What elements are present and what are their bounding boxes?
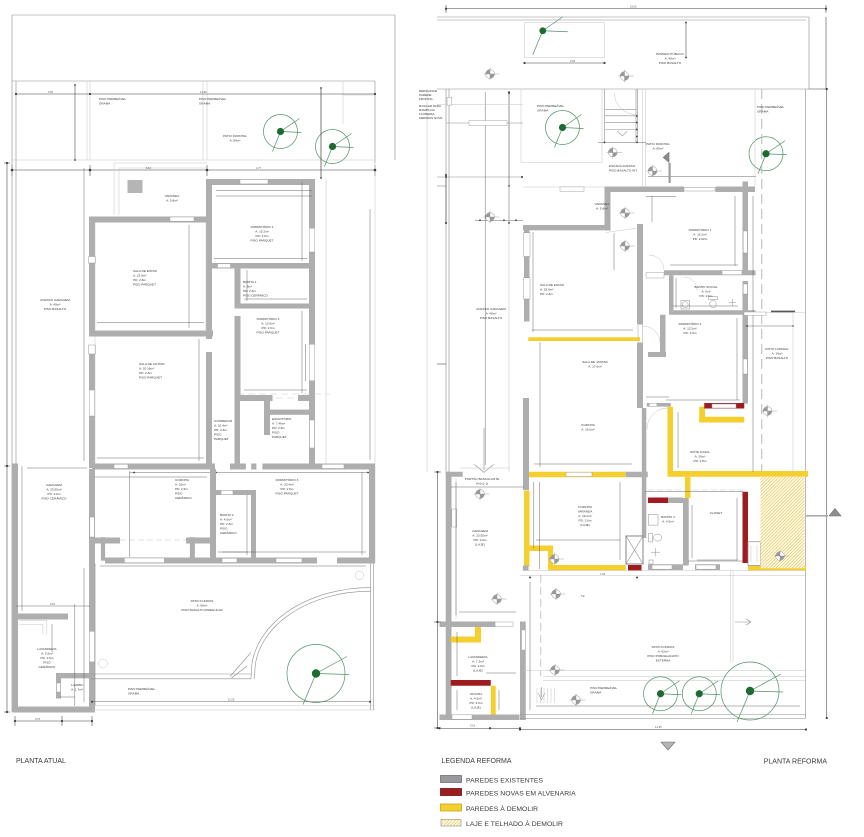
svg-text:PD: 2.6m: PD: 2.6m bbox=[175, 487, 188, 491]
svg-text:PD: 2.8m: PD: 2.8m bbox=[694, 459, 707, 463]
svg-text:PISO BASALTO IRREGULAR: PISO BASALTO IRREGULAR bbox=[181, 608, 223, 612]
svg-text:PARQUET: PARQUET bbox=[272, 435, 287, 439]
svg-text:(LAJE): (LAJE) bbox=[475, 543, 484, 547]
svg-text:A: 25.55m²: A: 25.55m² bbox=[46, 488, 61, 492]
svg-text:A: 23.6m²: A: 23.6m² bbox=[133, 274, 146, 278]
svg-text:A: 5.5m²: A: 5.5m² bbox=[41, 652, 53, 656]
svg-text:PD: 2.6m: PD: 2.6m bbox=[220, 522, 233, 526]
svg-text:PD: 2.8m: PD: 2.8m bbox=[272, 426, 285, 430]
svg-text:PLANTA REFORMA: PLANTA REFORMA bbox=[764, 759, 828, 766]
svg-text:PISO CERÂMICO: PISO CERÂMICO bbox=[42, 497, 68, 501]
svg-text:3.55: 3.55 bbox=[48, 90, 54, 94]
svg-text:A: 40m²: A: 40m² bbox=[665, 57, 676, 61]
svg-text:PISO PERMEÁVEL: PISO PERMEÁVEL bbox=[128, 687, 155, 691]
svg-text:SALA DE JANTAR: SALA DE JANTAR bbox=[582, 360, 608, 364]
svg-text:PISO: PISO bbox=[272, 431, 280, 435]
svg-text:8.10: 8.10 bbox=[146, 166, 152, 170]
svg-text:A: 16m²: A: 16m² bbox=[772, 352, 783, 356]
svg-text:PISO PORCELANATO: PISO PORCELANATO bbox=[647, 654, 679, 658]
svg-text:A: 4.5m²: A: 4.5m² bbox=[662, 520, 674, 524]
svg-text:PISO: PISO bbox=[220, 527, 228, 531]
svg-text:PISO PERMEÁVEL: PISO PERMEÁVEL bbox=[537, 104, 564, 108]
svg-text:A: 4.6m²: A: 4.6m² bbox=[220, 518, 232, 522]
svg-text:PISO PARQUET: PISO PARQUET bbox=[139, 376, 162, 380]
svg-text:PISO PERMEÁVEL: PISO PERMEÁVEL bbox=[99, 97, 126, 101]
svg-text:GARAGEM: GARAGEM bbox=[46, 483, 62, 487]
svg-text:A: 12.5m²: A: 12.5m² bbox=[683, 327, 696, 331]
svg-text:PD: 2.6m: PD: 2.6m bbox=[470, 701, 483, 705]
svg-text:MEDIDAS NOVA: MEDIDAS NOVA bbox=[419, 116, 443, 120]
svg-text:PISO CERÂMICO: PISO CERÂMICO bbox=[243, 294, 269, 298]
svg-text:PD: 2.6m: PD: 2.6m bbox=[214, 428, 227, 432]
svg-text:SUÍTE CASAL: SUÍTE CASAL bbox=[690, 450, 710, 454]
svg-text:PISO BASALTO INT.: PISO BASALTO INT. bbox=[609, 169, 638, 173]
svg-text:SALA DE JANTAR: SALA DE JANTAR bbox=[139, 362, 165, 366]
svg-text:A: 15.2m²: A: 15.2m² bbox=[693, 233, 706, 237]
svg-text:PD: 2.6m: PD: 2.6m bbox=[540, 292, 553, 296]
svg-text:PD: 2.6m: PD: 2.6m bbox=[262, 326, 275, 330]
svg-text:T2: T2 bbox=[581, 594, 585, 598]
svg-text:PLANTA ATUAL: PLANTA ATUAL bbox=[16, 758, 66, 765]
svg-text:PORTÃO BASCULANTE: PORTÃO BASCULANTE bbox=[465, 476, 500, 481]
svg-text:VARANDA: VARANDA bbox=[578, 510, 594, 514]
svg-text:PISO: PISO bbox=[175, 492, 183, 496]
svg-text:A: 5.8m²: A: 5.8m² bbox=[596, 207, 608, 211]
svg-text:OFICINA: OFICINA bbox=[470, 692, 483, 696]
svg-text:PD: 2.6m: PD: 2.6m bbox=[256, 234, 269, 238]
svg-text:A: 4.5m²: A: 4.5m² bbox=[470, 697, 482, 701]
svg-text:VARANDA: VARANDA bbox=[595, 202, 611, 206]
svg-text:BANHO 2: BANHO 2 bbox=[661, 515, 675, 519]
svg-text:A: 15.6m²: A: 15.6m² bbox=[581, 428, 594, 432]
svg-text:DORMITÓRIO 1: DORMITÓRIO 1 bbox=[689, 227, 712, 232]
svg-text:LAVANDERIA: LAVANDERIA bbox=[468, 655, 488, 659]
svg-text:DORMITÓRIO 2: DORMITÓRIO 2 bbox=[257, 316, 280, 321]
svg-text:SALA DE ESTAR: SALA DE ESTAR bbox=[133, 269, 158, 273]
svg-text:GRAMA: GRAMA bbox=[199, 102, 211, 106]
svg-text:A: 25.9m²: A: 25.9m² bbox=[540, 288, 553, 292]
svg-text:PD: 2.6m: PD: 2.6m bbox=[48, 492, 61, 496]
svg-text:(LAJE): (LAJE) bbox=[471, 706, 480, 710]
svg-text:BANHO 1: BANHO 1 bbox=[243, 280, 257, 284]
svg-text:PAREDES NOVAS EM ALVENARIA: PAREDES NOVAS EM ALVENARIA bbox=[466, 791, 576, 798]
svg-text:GRAMA: GRAMA bbox=[99, 102, 111, 106]
svg-text:PATIO FRONTAL: PATIO FRONTAL bbox=[223, 134, 247, 138]
svg-text:PARQUET: PARQUET bbox=[214, 437, 229, 441]
svg-text:11.25: 11.25 bbox=[228, 697, 235, 701]
svg-text:PD: 2.6m: PD: 2.6m bbox=[243, 289, 256, 293]
svg-text:SALA DE ESTAR: SALA DE ESTAR bbox=[540, 283, 565, 287]
svg-text:DORMITÓRIO 3: DORMITÓRIO 3 bbox=[276, 477, 299, 482]
svg-text:GRAMA: GRAMA bbox=[128, 692, 140, 696]
svg-text:ESCADA ACESSO: ESCADA ACESSO bbox=[609, 164, 636, 168]
svg-text:GRAMA: GRAMA bbox=[590, 691, 602, 695]
svg-text:DORMITÓRIO 1: DORMITÓRIO 1 bbox=[251, 224, 274, 229]
svg-text:A: 13.5m²: A: 13.5m² bbox=[261, 322, 274, 326]
svg-text:A: 10.4m²: A: 10.4m² bbox=[214, 424, 227, 428]
svg-text:A: 20.16m²: A: 20.16m² bbox=[139, 367, 154, 371]
svg-text:PD: 2.8m: PD: 2.8m bbox=[281, 487, 294, 491]
svg-text:A: 16m²: A: 16m² bbox=[175, 483, 186, 487]
svg-text:ACESSO GARAGEM: ACESSO GARAGEM bbox=[476, 307, 506, 311]
svg-text:A: 7.3m²: A: 7.3m² bbox=[472, 660, 484, 664]
svg-text:PISO PERMEÁVEL: PISO PERMEÁVEL bbox=[199, 97, 226, 101]
svg-text:PISO BASALTO: PISO BASALTO bbox=[766, 356, 789, 360]
svg-text:3.63: 3.63 bbox=[570, 59, 576, 63]
svg-text:ESCRITÓRIO: ESCRITÓRIO bbox=[272, 416, 292, 421]
svg-text:3.70: 3.70 bbox=[35, 717, 41, 721]
svg-text:PAREDES EXISTENTES: PAREDES EXISTENTES bbox=[466, 778, 543, 785]
svg-text:BANHO SOCIAL: BANHO SOCIAL bbox=[694, 285, 717, 289]
svg-text:LAVABO: LAVABO bbox=[71, 683, 84, 687]
svg-text:PISO PERMEÁVEL: PISO PERMEÁVEL bbox=[590, 686, 617, 690]
svg-text:7.18: 7.18 bbox=[600, 572, 606, 576]
svg-text:PD: 2.62m: PD: 2.62m bbox=[693, 237, 708, 241]
svg-text:15.00: 15.00 bbox=[630, 5, 637, 9]
svg-text:PISO PARQUET: PISO PARQUET bbox=[257, 331, 280, 335]
svg-text:LAVANDERIA: LAVANDERIA bbox=[37, 647, 57, 651]
svg-text:CLOSET: CLOSET bbox=[710, 511, 722, 515]
svg-text:PD: 2.6m: PD: 2.6m bbox=[472, 664, 485, 668]
svg-text:PD: 2.6m: PD: 2.6m bbox=[474, 538, 487, 542]
svg-text:PATIO LATERAL: PATIO LATERAL bbox=[765, 347, 788, 351]
svg-text:A: 23.55m²: A: 23.55m² bbox=[472, 534, 487, 538]
svg-text:PAREDES À DEMOLIR: PAREDES À DEMOLIR bbox=[466, 804, 538, 813]
svg-text:PATIO FUNDOS: PATIO FUNDOS bbox=[652, 645, 675, 649]
svg-text:A: 5m²: A: 5m² bbox=[701, 290, 710, 294]
svg-text:A: 26m²: A: 26m² bbox=[695, 455, 706, 459]
svg-text:3.61: 3.61 bbox=[50, 602, 56, 606]
svg-text:PISO BASALTO: PISO BASALTO bbox=[44, 307, 67, 311]
svg-text:PISO PARQUET: PISO PARQUET bbox=[276, 492, 299, 496]
svg-text:BANHO 2: BANHO 2 bbox=[220, 513, 234, 517]
svg-text:(LAJE): (LAJE) bbox=[473, 669, 482, 673]
svg-text:PD: 2.6m: PD: 2.6m bbox=[684, 331, 697, 335]
svg-text:(LAJE): (LAJE) bbox=[580, 523, 589, 527]
svg-text:EXTERNA: EXTERNA bbox=[656, 659, 672, 663]
svg-text:A: 5m²: A: 5m² bbox=[243, 285, 252, 289]
svg-text:14.90: 14.90 bbox=[200, 90, 207, 94]
svg-text:PATIO FUNDOS: PATIO FUNDOS bbox=[191, 599, 214, 603]
svg-text:CERÂMICO: CERÂMICO bbox=[39, 665, 56, 669]
svg-text:LEGENDA REFORMA: LEGENDA REFORMA bbox=[442, 758, 512, 765]
svg-text:GARAGEM: GARAGEM bbox=[472, 529, 488, 533]
svg-text:A: 60m²: A: 60m² bbox=[197, 604, 208, 608]
svg-text:PD: 2.8m: PD: 2.8m bbox=[133, 278, 146, 282]
svg-text:FRONTAL: FRONTAL bbox=[419, 97, 433, 101]
svg-text:(4.0x2.1): (4.0x2.1) bbox=[476, 482, 488, 486]
svg-text:CERÂMICO: CERÂMICO bbox=[220, 531, 237, 535]
svg-text:14.35: 14.35 bbox=[655, 725, 662, 729]
svg-text:DORMITÓRIO 2: DORMITÓRIO 2 bbox=[679, 321, 702, 326]
svg-text:COZINHA: COZINHA bbox=[581, 423, 596, 427]
svg-text:PISO: PISO bbox=[43, 661, 51, 665]
svg-text:A: 7.46m²: A: 7.46m² bbox=[272, 422, 285, 426]
svg-text:VARANDA: VARANDA bbox=[165, 194, 181, 198]
svg-text:A: 85m²: A: 85m² bbox=[230, 139, 241, 143]
svg-text:ACESSO GARAGEM: ACESSO GARAGEM bbox=[40, 298, 70, 302]
svg-text:GRAMA: GRAMA bbox=[757, 110, 769, 114]
svg-text:GRAMA: GRAMA bbox=[537, 109, 549, 113]
svg-text:A: 20.4m²: A: 20.4m² bbox=[280, 483, 293, 487]
svg-text:PASSEIO PÚBLICO: PASSEIO PÚBLICO bbox=[656, 52, 684, 56]
svg-text:4.77: 4.77 bbox=[256, 166, 262, 170]
svg-text:PD: 2.8m: PD: 2.8m bbox=[139, 371, 152, 375]
svg-text:COZINHA: COZINHA bbox=[175, 478, 190, 482]
svg-text:PISO: PISO bbox=[214, 433, 222, 437]
svg-text:A: 85m²: A: 85m² bbox=[653, 147, 664, 151]
svg-text:A: 15.2m²: A: 15.2m² bbox=[255, 230, 268, 234]
svg-text:CERÂMICO: CERÂMICO bbox=[175, 496, 192, 500]
svg-text:A: 5.8m²: A: 5.8m² bbox=[166, 199, 178, 203]
svg-text:PD: 2.6m: PD: 2.6m bbox=[579, 519, 592, 523]
svg-text:A: 19.2m²: A: 19.2m² bbox=[578, 514, 591, 518]
svg-text:PISO PARQUET: PISO PARQUET bbox=[251, 239, 274, 243]
svg-text:COZINHA: COZINHA bbox=[578, 505, 593, 509]
svg-text:PD: 2.6m: PD: 2.6m bbox=[41, 656, 54, 660]
svg-text:PISO PERMEÁVEL: PISO PERMEÁVEL bbox=[757, 105, 784, 109]
svg-text:PD: 2.6m: PD: 2.6m bbox=[700, 294, 713, 298]
svg-text:A: 17.6m²: A: 17.6m² bbox=[588, 365, 601, 369]
svg-text:PATIO FRONTAL: PATIO FRONTAL bbox=[646, 142, 670, 146]
svg-text:LAJE E TELHADO À DEMOLIR: LAJE E TELHADO À DEMOLIR bbox=[466, 819, 563, 828]
svg-text:A: 45m²: A: 45m² bbox=[50, 303, 61, 307]
svg-text:A: 1.7m²: A: 1.7m² bbox=[71, 688, 83, 692]
svg-text:3.15: 3.15 bbox=[470, 724, 476, 728]
svg-text:PISO PARQUET: PISO PARQUET bbox=[133, 283, 156, 287]
svg-text:CORREDOR: CORREDOR bbox=[214, 419, 233, 423]
svg-text:PISO BASALTO: PISO BASALTO bbox=[480, 316, 503, 320]
svg-text:PISO BASALTO: PISO BASALTO bbox=[659, 61, 682, 65]
svg-text:A: 46m²: A: 46m² bbox=[486, 312, 497, 316]
svg-text:A: 62m²: A: 62m² bbox=[658, 650, 669, 654]
